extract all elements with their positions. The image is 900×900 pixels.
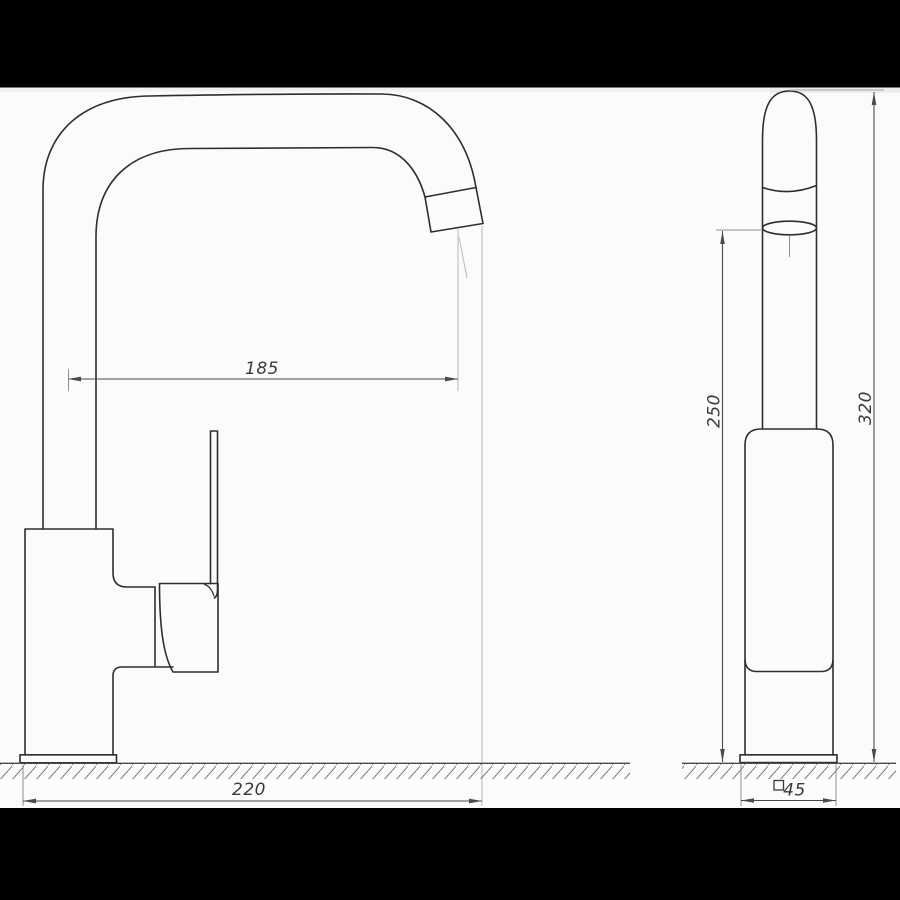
scan-artifact-band <box>0 88 900 92</box>
dimension-label-320: 320 <box>856 391 876 425</box>
dimension-label-185: 185 <box>245 359 279 379</box>
bottom-black-bar <box>0 808 900 900</box>
ground-hatch-left <box>0 764 630 779</box>
dimension-label-45: 45 <box>783 781 806 801</box>
ground <box>0 763 896 779</box>
top-black-bar <box>0 0 900 88</box>
technical-drawing-page: 185 220 250 320 45 <box>0 0 900 900</box>
faucet-dimension-drawing: 185 220 250 320 45 <box>0 0 900 900</box>
ground-hatch-right <box>682 764 896 779</box>
dimension-label-220: 220 <box>232 780 266 800</box>
dimension-label-250: 250 <box>705 394 725 428</box>
